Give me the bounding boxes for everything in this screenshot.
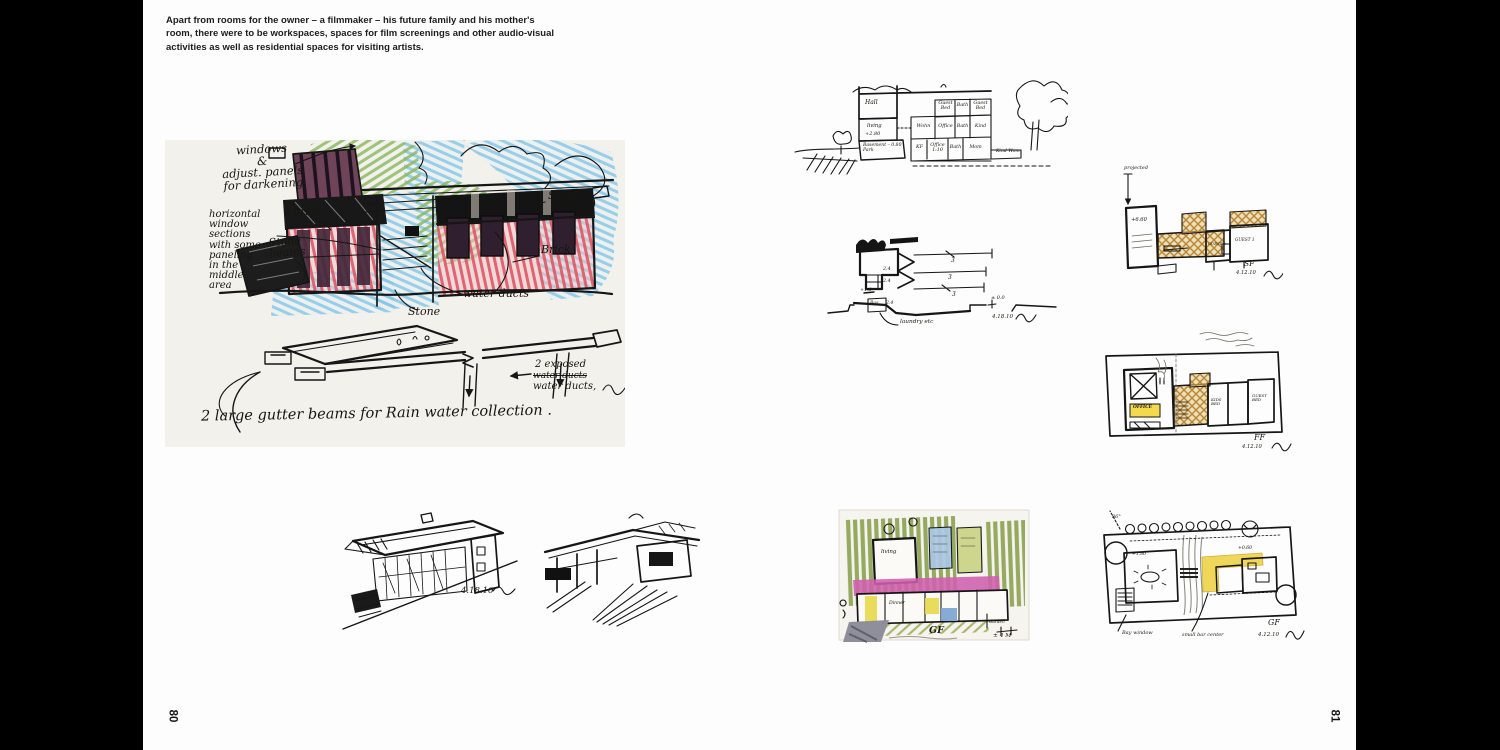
- label-exposed-1: 2 exposed: [535, 360, 586, 370]
- gf-plan-sketch: 86° +1.80 +0.60 Bay window small bar cen…: [1090, 495, 1312, 647]
- room-living: living: [867, 124, 882, 129]
- level-660: +6.60: [1131, 218, 1147, 223]
- dim-3-a: 3: [951, 258, 955, 264]
- room-living-gf: living: [881, 550, 896, 556]
- gf-color-plan-sketch: living Dinner GF Garden ± 4 M: [837, 506, 1033, 646]
- page-number-right: 81: [1328, 710, 1340, 723]
- perspective-sketch-1: 4.18.10: [325, 503, 525, 635]
- room-guest1: GUEST 1: [1235, 238, 1265, 242]
- label-stone-right: Stone: [548, 190, 580, 201]
- label-projected: projected: [1124, 166, 1148, 171]
- label-brick-left: Brick: [293, 208, 320, 218]
- dim-24-a: 2.4: [883, 268, 891, 273]
- right-building: [435, 186, 609, 296]
- dim-3-c: 3: [952, 292, 956, 298]
- sf-plan-sketch: projected +6.60 GUEST 2 GUEST 1 SF 4.12.…: [1118, 160, 1283, 282]
- room-kids-bed: KIDS BED: [1211, 398, 1227, 406]
- signature: [1272, 443, 1291, 451]
- angle-note: 86°: [1112, 515, 1121, 520]
- level-18: +1.8: [860, 289, 872, 294]
- room-bath-2: Bath: [955, 125, 970, 130]
- room-office: OFFICE: [1133, 406, 1152, 410]
- label-brick-right: Brick: [541, 244, 571, 255]
- room-dinner: Dinner: [889, 602, 905, 607]
- room-kf: KF: [912, 146, 927, 151]
- caption: Apart from rooms for the owner – a filmm…: [166, 14, 646, 54]
- room-guest-bed-1: Guest Bed: [936, 102, 955, 112]
- room-office-1: Office: [936, 125, 955, 130]
- floor-label-gf: GF: [1268, 619, 1280, 627]
- dim-24-c: 2.4: [886, 302, 893, 307]
- room-basement: Basement – 0.80 | Park: [863, 144, 909, 153]
- note-windows-panels: windows & adjust. panels for darkening: [189, 140, 336, 194]
- level-280: +2.80: [865, 132, 880, 137]
- room-mom: Mom: [963, 146, 988, 151]
- signature: [493, 587, 515, 595]
- section-elevation-sketch: Hall Guest Bed Bath Guest Bed Wohn Offic…: [793, 62, 1068, 177]
- sketch-date: 4.18.10: [461, 587, 493, 596]
- label-exposed-struck: water ducts: [533, 372, 587, 381]
- dim-24-b: 2.4: [883, 280, 891, 285]
- level-060: +0.60: [1238, 547, 1252, 552]
- sketch-date: 4.12.10: [1258, 633, 1279, 639]
- sketch-date: 4.18.10: [992, 315, 1013, 321]
- label-bas: Bas.: [870, 302, 880, 307]
- room-kind: Kind: [970, 125, 991, 130]
- label-stone-beams: Stone beams: [268, 235, 306, 260]
- label-exposed-2: water ducts,: [533, 382, 596, 392]
- floor-label-ff: FF: [1254, 434, 1265, 442]
- section-drawing: [820, 225, 1060, 335]
- floor-label-sf: SF: [1244, 260, 1254, 268]
- floor-label-gf-color: GF: [929, 626, 944, 636]
- page-number-left: 80: [166, 710, 178, 723]
- room-wohn: Wohn: [912, 125, 935, 130]
- level-180: +1.80: [1132, 553, 1146, 558]
- room-hall: Hall: [865, 100, 878, 106]
- note-bay-window: Bay window: [1122, 631, 1153, 636]
- signature: [1286, 631, 1304, 639]
- dim-4m: ± 4 M: [993, 634, 1011, 640]
- sketch-date: 4.12.10: [1236, 271, 1256, 276]
- elevation-sketch: windows & adjust. panels for darkening h…: [165, 140, 625, 447]
- room-guest-bed: GUEST BED: [1252, 394, 1270, 402]
- label-garden: Garden: [989, 620, 1005, 624]
- datum-00: ± 0.0: [991, 296, 1005, 301]
- label-laundry: laundry etc: [900, 320, 933, 326]
- section-sketch: 2.4 2.4 +1.8 Bas. 2.4 3 3 3 ± 0.0 laundr…: [820, 225, 1060, 335]
- section-elevation-drawing: [793, 62, 1068, 177]
- room-guest2: GUEST 2: [1208, 242, 1228, 246]
- dim-3-b: 3: [948, 275, 952, 281]
- label-stone-bottom: Stone: [408, 306, 440, 317]
- note-kind-wom: Kind Wom: [996, 150, 1020, 155]
- signature: [1264, 271, 1283, 279]
- room-bath-1: Bath: [955, 104, 970, 109]
- room-bath-3: Bath: [948, 146, 963, 151]
- ff-plan-sketch: OFFICE KIDS BED GUEST BED FF 4.12.10: [1096, 326, 1294, 454]
- perspective-drawing-2: [537, 512, 709, 630]
- note-center: small bar center: [1182, 633, 1224, 638]
- signature: [1016, 314, 1036, 322]
- book-spread-photo: Apart from rooms for the owner – a filmm…: [0, 0, 1500, 750]
- sketch-date: 4.12.10: [1242, 445, 1262, 450]
- room-guest-bed-2: Guest Bed: [970, 102, 991, 112]
- perspective-sketch-2: [537, 512, 709, 630]
- room-office-2: Office 1:10: [927, 144, 948, 154]
- label-water-ducts: water ducts: [463, 288, 529, 299]
- perspective-drawing-1: [325, 503, 525, 635]
